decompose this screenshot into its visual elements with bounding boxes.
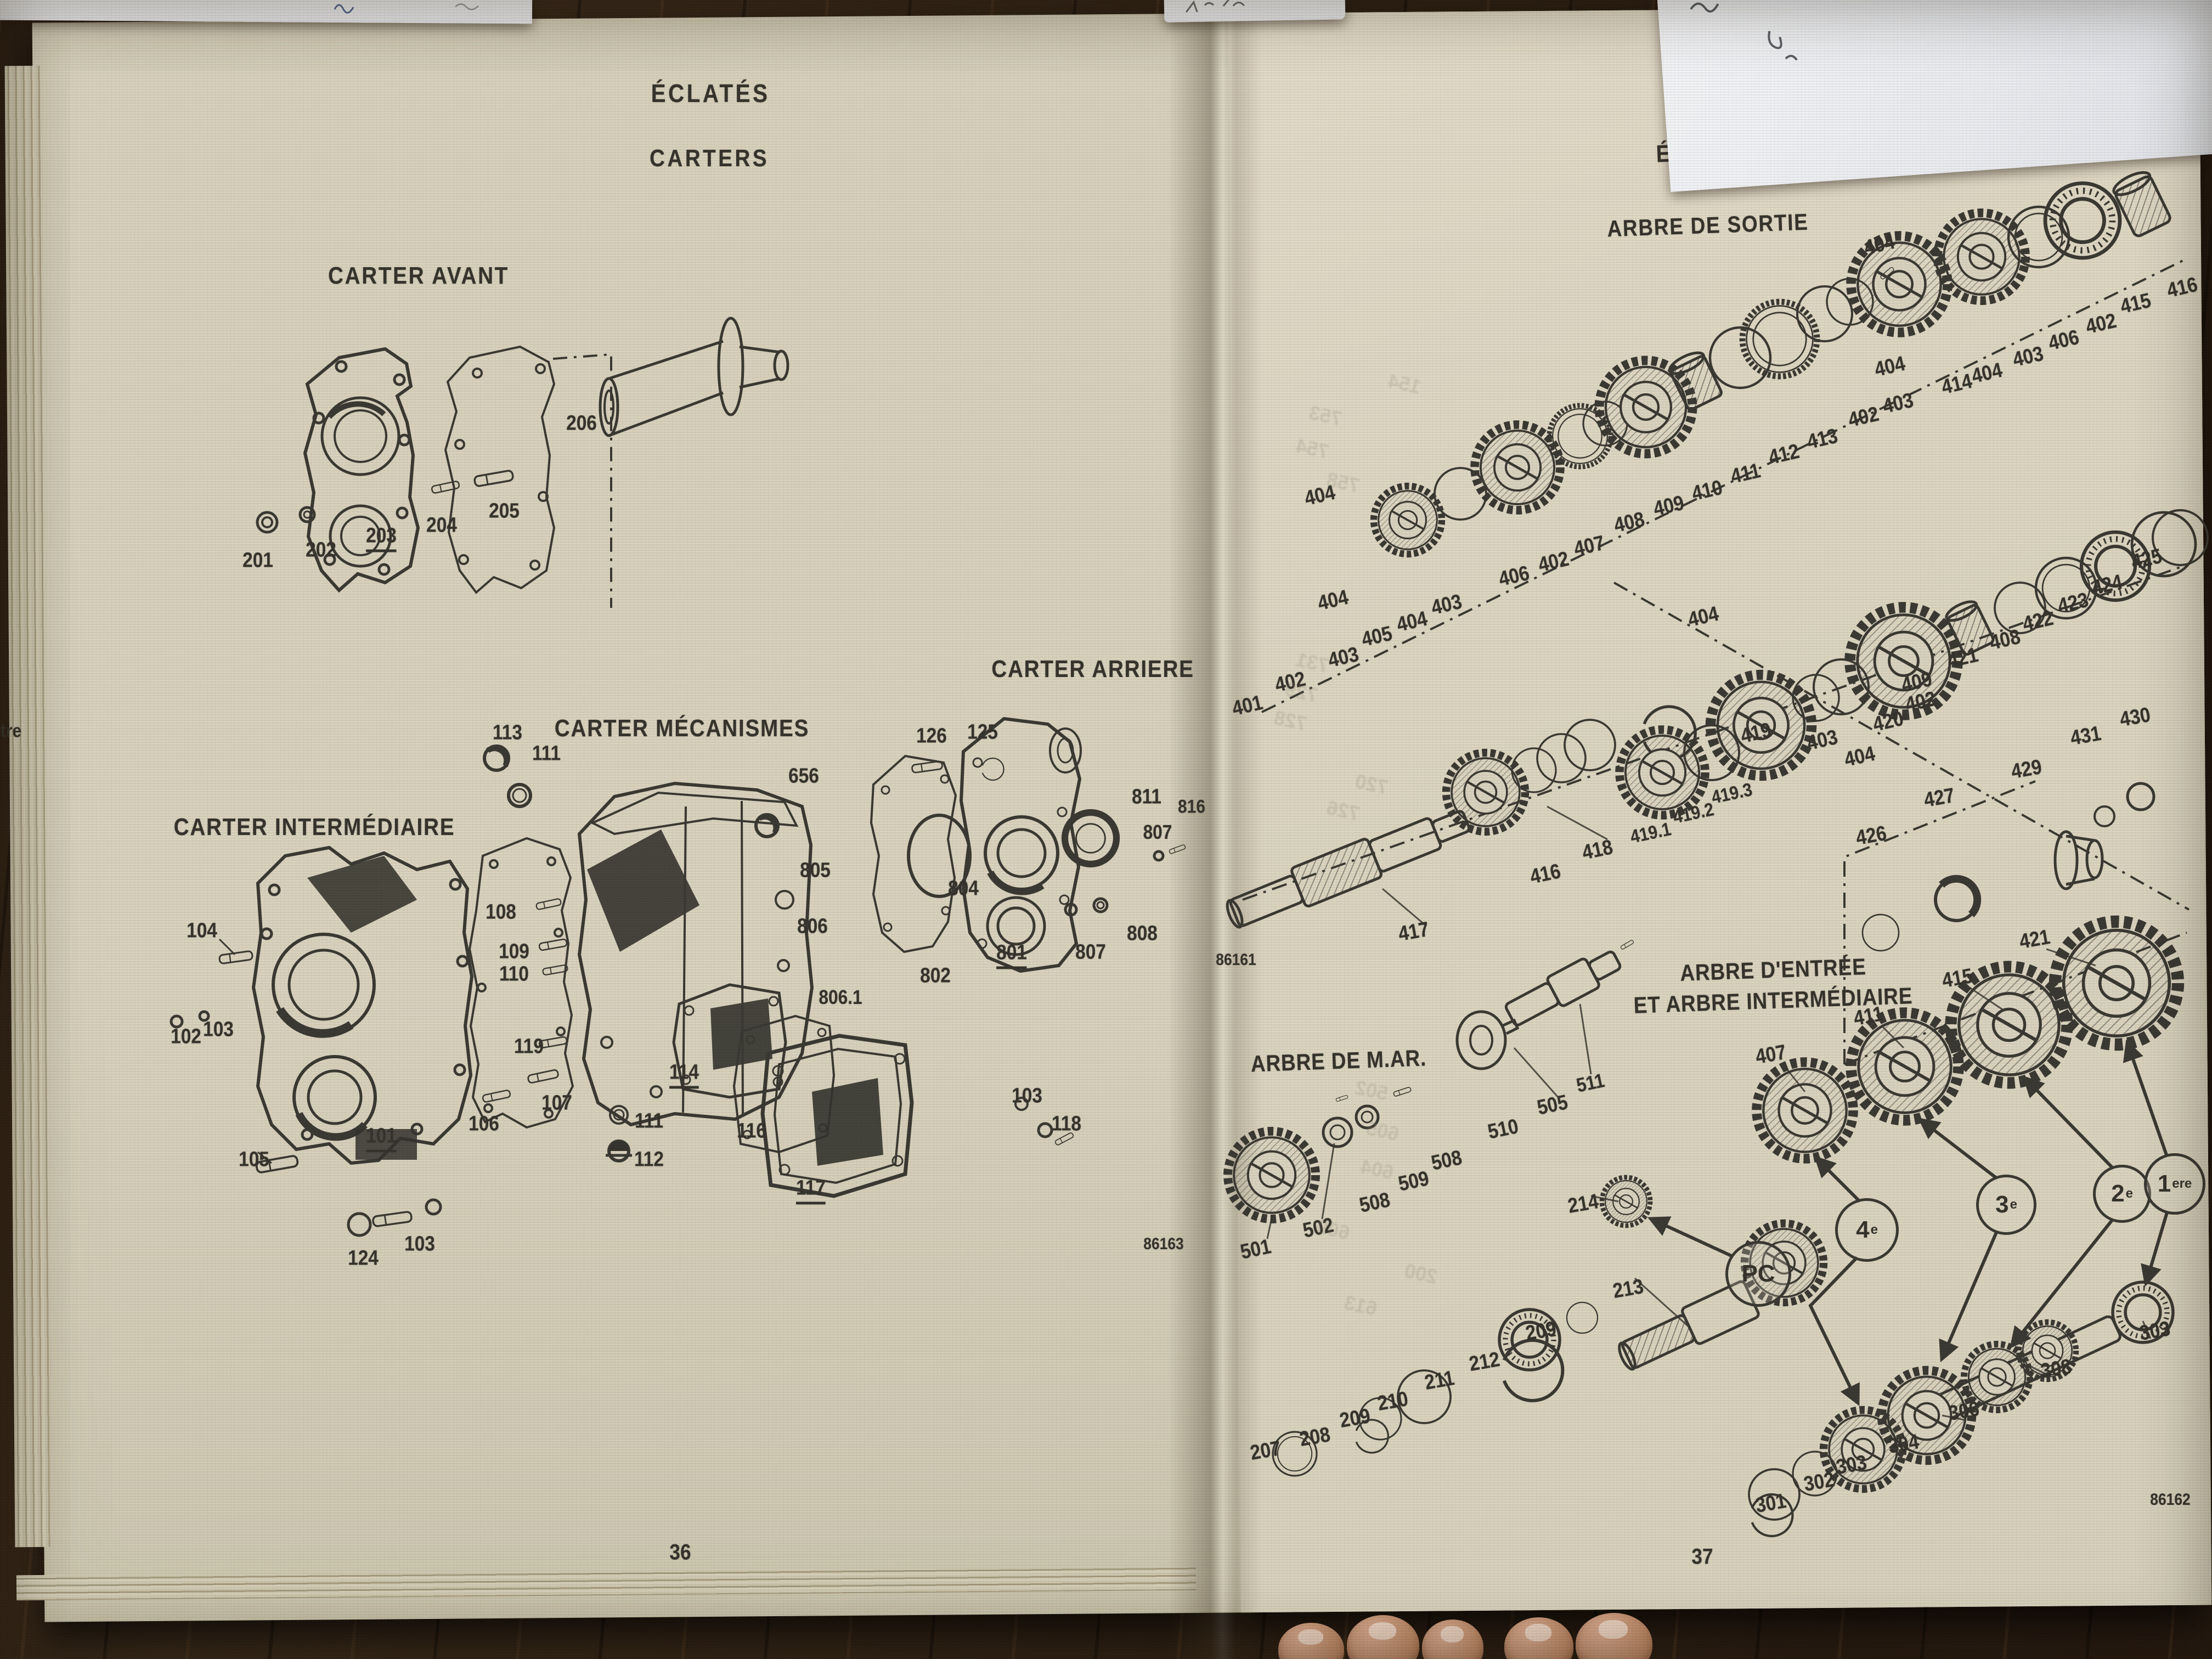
bleed-through-number: 729 <box>1283 678 1319 707</box>
bleed-through-number: 502 <box>1353 1076 1390 1105</box>
bleed-through-number: 720 <box>1353 770 1390 799</box>
paper-scrap-top-left <box>0 0 532 24</box>
bleed-through-number: 154 <box>1386 369 1423 399</box>
handwriting-squiggle <box>1164 0 1346 22</box>
bleed-through-number: 609 <box>1314 1215 1351 1245</box>
bleed-through-number: 754 <box>1294 434 1330 464</box>
bleed-through-number: 758 <box>1324 468 1361 498</box>
bleed-through-number: 726 <box>1324 796 1361 826</box>
bleed-through-text: 7537547581547317297287207265026056046096… <box>0 0 2212 1659</box>
bleed-through-number: 731 <box>1294 648 1330 678</box>
bleed-through-number: 753 <box>1307 401 1344 431</box>
bleed-through-number: 605 <box>1364 1116 1401 1146</box>
bleed-through-number: 604 <box>1358 1155 1395 1184</box>
bleed-through-number: 613 <box>1342 1291 1379 1321</box>
bleed-through-number: 200 <box>1402 1259 1439 1289</box>
bleed-through-number: 728 <box>1272 706 1308 736</box>
handwriting-squiggle <box>0 0 532 24</box>
photo-of-open-manual: ÉCLATÉSCARTERSCARTER AVANTCARTER MÉCANIS… <box>0 0 2212 1659</box>
paper-scrap-top-center <box>1164 0 1346 22</box>
